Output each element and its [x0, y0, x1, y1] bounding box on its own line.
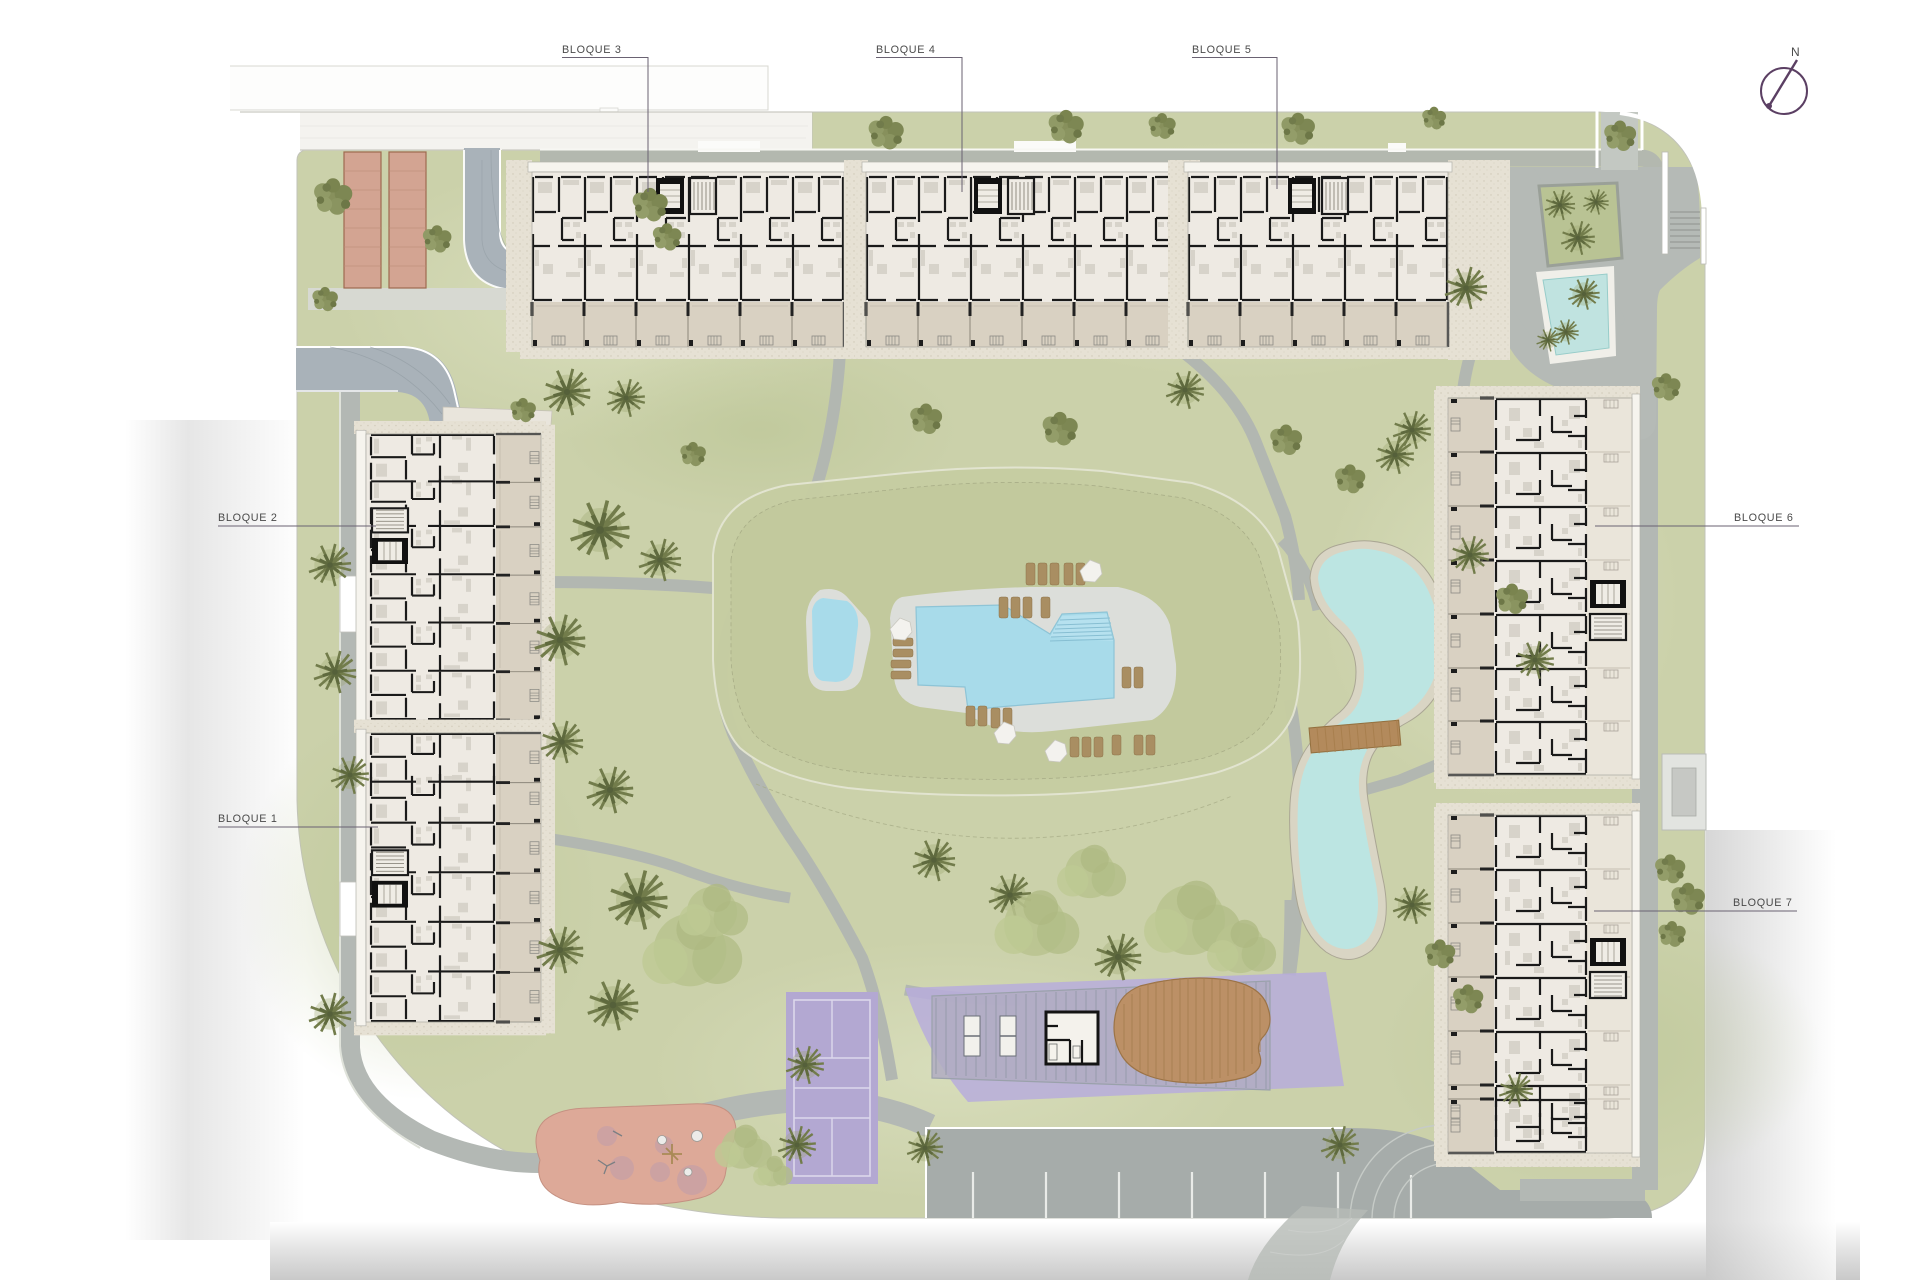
svg-text:BLOQUE 2: BLOQUE 2 — [218, 512, 278, 524]
svg-text:BLOQUE 5: BLOQUE 5 — [1192, 44, 1252, 56]
svg-text:BLOQUE 4: BLOQUE 4 — [876, 44, 936, 56]
svg-text:BLOQUE 1: BLOQUE 1 — [218, 813, 278, 825]
svg-text:BLOQUE 6: BLOQUE 6 — [1734, 512, 1794, 524]
svg-text:BLOQUE 7: BLOQUE 7 — [1733, 897, 1793, 909]
svg-text:BLOQUE 3: BLOQUE 3 — [562, 44, 622, 56]
svg-text:N: N — [1791, 45, 1800, 59]
